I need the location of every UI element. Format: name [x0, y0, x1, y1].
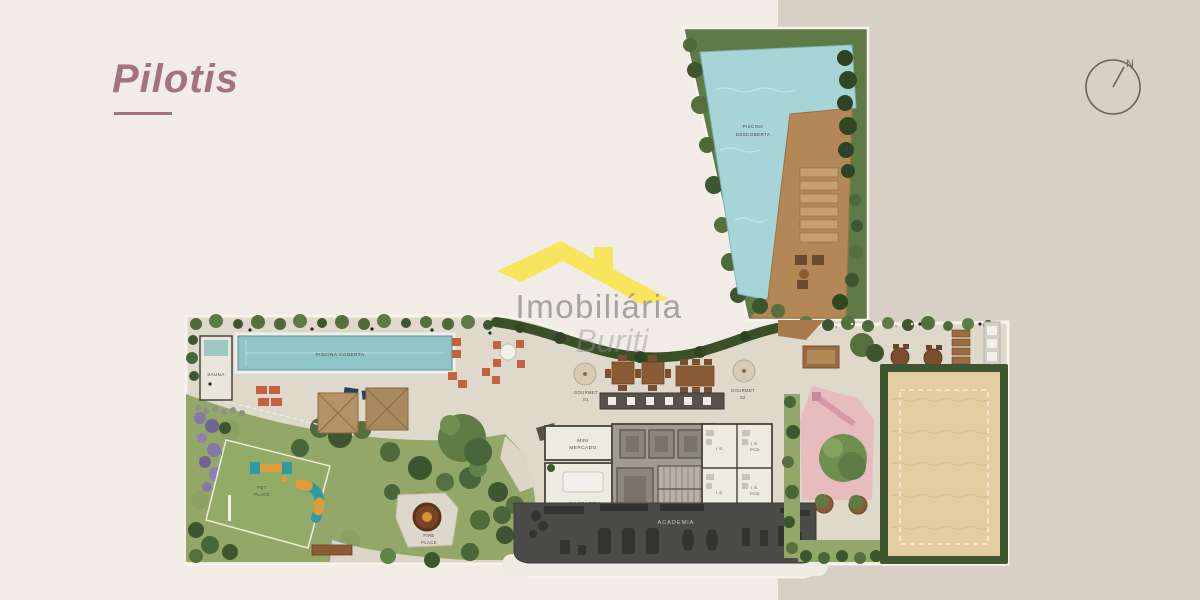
grill-counter [600, 393, 724, 409]
massage-table [563, 472, 603, 492]
fire-flame [422, 512, 432, 522]
label-mini-mercado-2: MERCADO [569, 445, 596, 451]
rooms-block: MINI MERCADO MASSAGEM [536, 423, 772, 516]
label-academia: ACADEMIA [658, 520, 695, 526]
fire-place: FIRE PLACE [396, 493, 458, 547]
label-gourmet-02-2: 02 [740, 395, 746, 400]
storage-cabinets [984, 322, 1000, 366]
massage-plant [547, 464, 555, 472]
label-fire-place-1: FIRE [423, 533, 434, 538]
pet-pole [228, 495, 231, 521]
label-wc-1a: I.S. [716, 446, 724, 451]
garden-bench [312, 545, 352, 555]
label-wc-1b-1: I.S. [751, 441, 759, 446]
sauna-room: SAUNA [200, 336, 232, 400]
playground-tower [812, 392, 821, 401]
label-wc-2b-1: I.S. [751, 485, 759, 490]
label-piscina-descoberta-1: PISCINA [743, 124, 764, 129]
gourmet-01-table [574, 363, 596, 385]
communal-table-top [807, 350, 835, 364]
watermark-script-text: Buriti [576, 323, 650, 359]
label-sauna: SAUNA [207, 372, 225, 377]
sand-court [880, 364, 1008, 564]
pavilion-1 [318, 393, 358, 433]
floor-plan-image: PISCINA DESCOBERTA [0, 0, 1200, 600]
label-wc-2b-2: PCD [750, 491, 760, 496]
kids-playground [800, 386, 874, 514]
pet-toy [281, 476, 287, 482]
sauna-bench [204, 340, 228, 356]
lap-pool: PISCINA COBERTA [236, 334, 454, 372]
mini-mercado-room: MINI MERCADO [545, 426, 622, 460]
elevator-core [612, 424, 714, 514]
watermark-brand-text: Imobiliária [516, 288, 683, 325]
long-dining-table [676, 359, 714, 393]
label-fire-place-2: PLACE [421, 540, 437, 545]
label-pet-place-1: PET [257, 485, 266, 490]
title-underline [114, 112, 172, 115]
gourmet-02-table [733, 360, 755, 382]
page-title: Pilotis [112, 57, 239, 101]
label-piscina-descoberta-2: DESCOBERTA [736, 132, 771, 137]
wc-block: I.S. I.S. PCD I.S. I.S. PCD [702, 424, 772, 512]
compass-north-label: N [1126, 58, 1134, 70]
label-wc-2a: I.S. [716, 490, 724, 495]
label-gourmet-02-1: GOURMET [731, 388, 755, 393]
label-piscina-coberta: PISCINA COBERTA [315, 352, 364, 358]
label-gourmet-01-2: 01 [583, 397, 589, 402]
gym: ACADEMIA [502, 503, 828, 576]
floor-plan-page: PISCINA DESCOBERTA [0, 0, 1200, 600]
pavilion-2 [366, 388, 408, 430]
label-mini-mercado-1: MINI [577, 438, 589, 444]
label-wc-1b-2: PCD [750, 447, 760, 452]
side-lawn-strip [784, 394, 800, 558]
label-gourmet-01-1: GOURMET [574, 390, 598, 395]
label-pet-place-2: PLACE [254, 492, 270, 497]
